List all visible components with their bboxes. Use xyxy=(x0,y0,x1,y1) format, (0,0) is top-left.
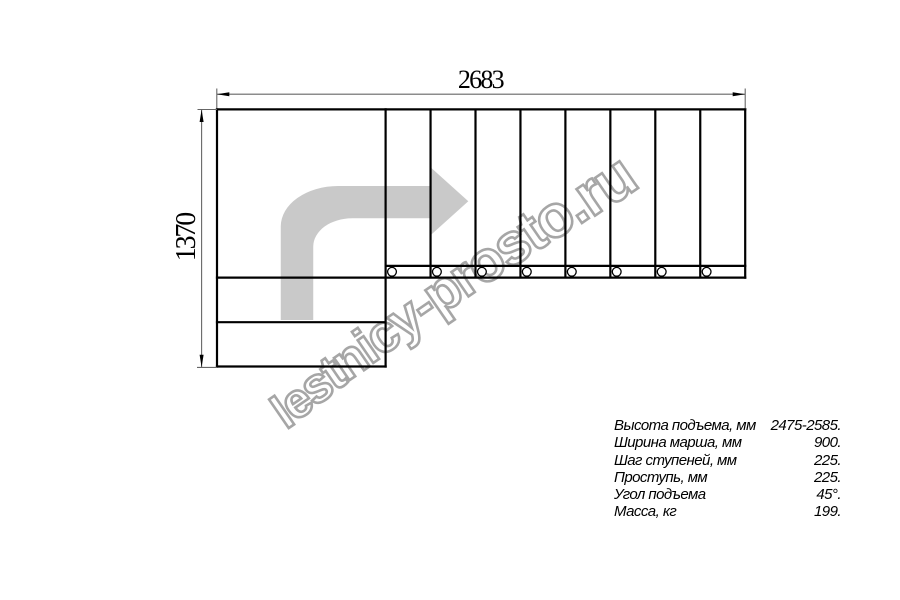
svg-text:2683: 2683 xyxy=(458,65,504,94)
svg-text:1370: 1370 xyxy=(171,213,202,261)
